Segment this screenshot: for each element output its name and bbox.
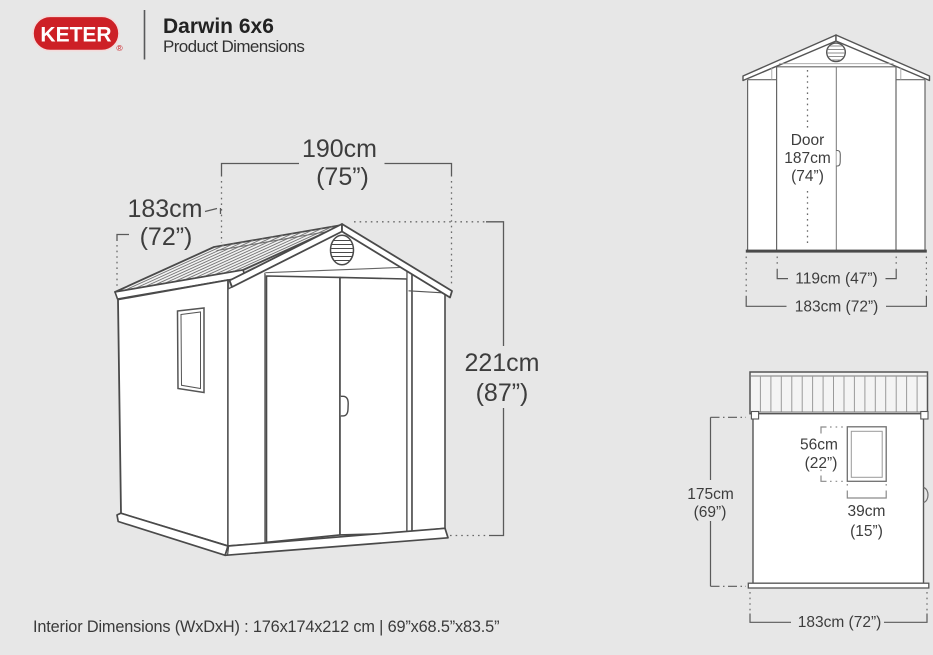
svg-text:221cm: 221cm [464, 349, 539, 377]
svg-text:Interior Dimensions (WxDxH) :: Interior Dimensions (WxDxH) : 176x174x21… [33, 618, 499, 636]
svg-text:187cm: 187cm [784, 150, 831, 167]
svg-text:183cm (72”): 183cm (72”) [798, 614, 882, 631]
svg-text:®: ® [116, 43, 123, 53]
svg-text:183cm: 183cm [127, 195, 202, 223]
svg-text:(74”): (74”) [791, 168, 824, 185]
svg-text:183cm (72”): 183cm (72”) [795, 299, 879, 316]
svg-text:(75”): (75”) [316, 163, 369, 191]
svg-text:Door: Door [791, 132, 825, 149]
svg-text:(69”): (69”) [694, 504, 727, 521]
svg-text:(87”): (87”) [476, 379, 529, 407]
svg-text:Product Dimensions: Product Dimensions [163, 37, 304, 56]
svg-text:175cm: 175cm [687, 486, 734, 503]
svg-text:(72”): (72”) [140, 223, 193, 251]
svg-text:39cm: 39cm [848, 503, 886, 520]
svg-text:190cm: 190cm [302, 135, 377, 163]
svg-text:(22”): (22”) [805, 455, 838, 472]
svg-text:119cm (47”): 119cm (47”) [795, 271, 877, 288]
svg-text:56cm: 56cm [800, 437, 838, 454]
svg-text:(15”): (15”) [850, 523, 883, 540]
svg-text:KETER: KETER [40, 24, 111, 47]
svg-text:Darwin 6x6: Darwin 6x6 [163, 15, 274, 38]
